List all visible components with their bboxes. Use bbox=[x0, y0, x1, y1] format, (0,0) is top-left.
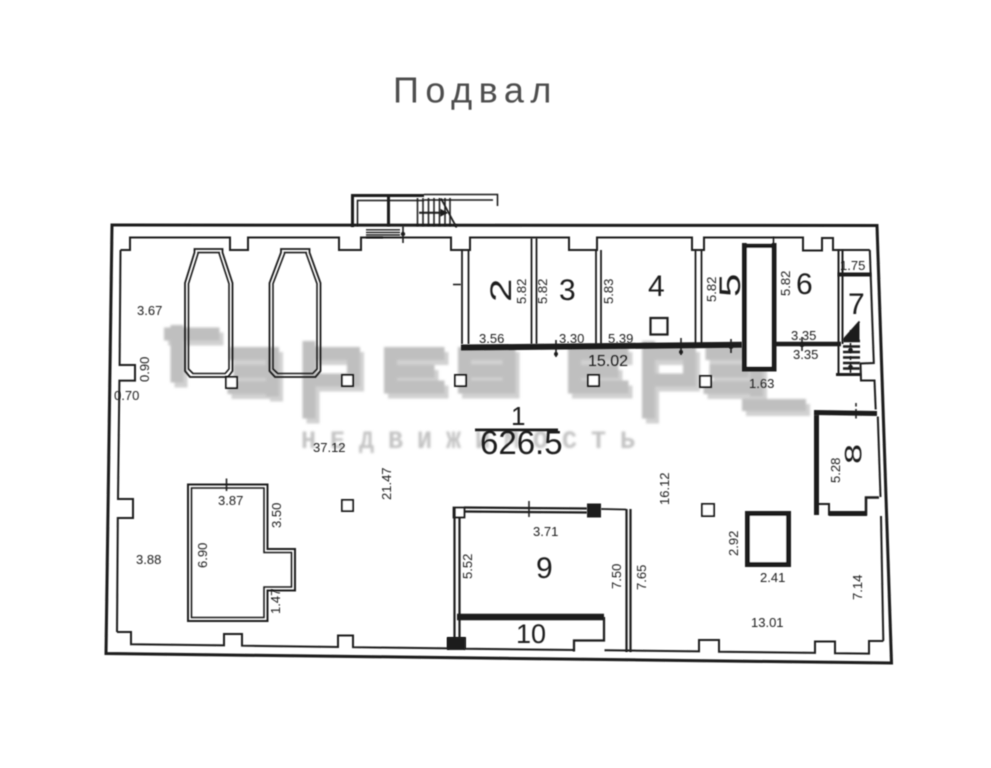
svg-text:3.67: 3.67 bbox=[137, 303, 162, 318]
svg-text:5.39: 5.39 bbox=[608, 331, 633, 346]
svg-text:НЕДВИЖИМОСТЬ: НЕДВИЖИМОСТЬ bbox=[301, 427, 649, 456]
svg-text:3.87: 3.87 bbox=[218, 493, 243, 508]
svg-text:7.65: 7.65 bbox=[634, 565, 649, 590]
svg-text:Подвал: Подвал bbox=[393, 70, 558, 111]
svg-text:10: 10 bbox=[516, 619, 546, 649]
svg-text:3.50: 3.50 bbox=[269, 503, 284, 528]
svg-text:0.90: 0.90 bbox=[137, 357, 152, 382]
svg-text:9: 9 bbox=[536, 552, 553, 585]
svg-text:8: 8 bbox=[840, 444, 867, 464]
svg-text:5.82: 5.82 bbox=[514, 279, 529, 304]
svg-text:13.01: 13.01 bbox=[751, 615, 784, 630]
svg-text:6.90: 6.90 bbox=[195, 543, 210, 568]
svg-text:5.52: 5.52 bbox=[460, 554, 475, 579]
svg-text:7: 7 bbox=[848, 288, 865, 321]
svg-text:626.5: 626.5 bbox=[480, 424, 563, 461]
svg-text:2.92: 2.92 bbox=[726, 531, 741, 556]
svg-text:7.50: 7.50 bbox=[609, 564, 624, 589]
svg-text:5.83: 5.83 bbox=[601, 279, 616, 304]
svg-text:3.35: 3.35 bbox=[793, 347, 818, 362]
svg-text:0.70: 0.70 bbox=[114, 388, 139, 403]
svg-text:7.14: 7.14 bbox=[850, 575, 865, 600]
svg-text:3: 3 bbox=[559, 274, 576, 307]
svg-text:6: 6 bbox=[796, 268, 813, 301]
svg-text:5.82: 5.82 bbox=[778, 271, 793, 296]
svg-text:16.12: 16.12 bbox=[657, 472, 672, 505]
svg-text:3.71: 3.71 bbox=[533, 524, 558, 539]
svg-text:15.02: 15.02 bbox=[588, 353, 628, 370]
svg-text:3.56: 3.56 bbox=[479, 331, 504, 346]
svg-text:3.88: 3.88 bbox=[136, 552, 161, 567]
svg-text:1.75: 1.75 bbox=[840, 258, 865, 273]
svg-text:3.30: 3.30 bbox=[559, 331, 584, 346]
svg-text:37.12: 37.12 bbox=[313, 440, 346, 455]
svg-text:1.63: 1.63 bbox=[749, 376, 774, 391]
svg-text:1.47: 1.47 bbox=[268, 589, 283, 614]
svg-text:3.35: 3.35 bbox=[791, 328, 816, 343]
svg-text:5: 5 bbox=[713, 274, 747, 297]
svg-text:21.47: 21.47 bbox=[379, 467, 394, 500]
svg-text:4: 4 bbox=[648, 270, 665, 303]
svg-text:5.82: 5.82 bbox=[535, 279, 550, 304]
svg-text:2.41: 2.41 bbox=[760, 570, 785, 585]
svg-text:2: 2 bbox=[484, 279, 518, 302]
